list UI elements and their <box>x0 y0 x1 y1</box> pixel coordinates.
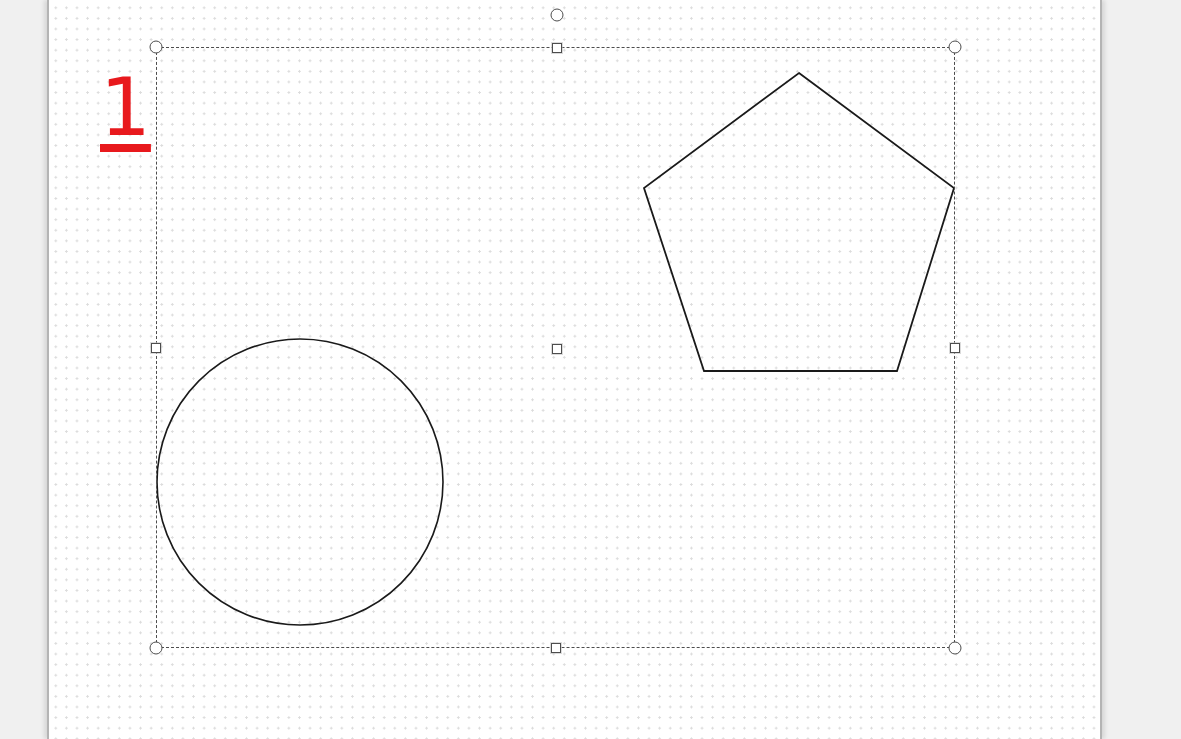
handle-top-middle[interactable] <box>552 43 562 53</box>
handle-bottom-right[interactable] <box>949 642 962 655</box>
handle-center[interactable] <box>552 344 562 354</box>
handle-bottom-middle[interactable] <box>551 643 561 653</box>
rotate-handle[interactable] <box>551 9 564 22</box>
page-number-annotation[interactable]: 1 <box>100 61 151 154</box>
drawing-app-window: 1 <box>0 0 1181 739</box>
handle-bottom-left[interactable] <box>150 642 163 655</box>
handle-middle-right[interactable] <box>950 343 960 353</box>
handle-middle-left[interactable] <box>151 343 161 353</box>
handle-top-right[interactable] <box>949 41 962 54</box>
handle-top-left[interactable] <box>150 41 163 54</box>
